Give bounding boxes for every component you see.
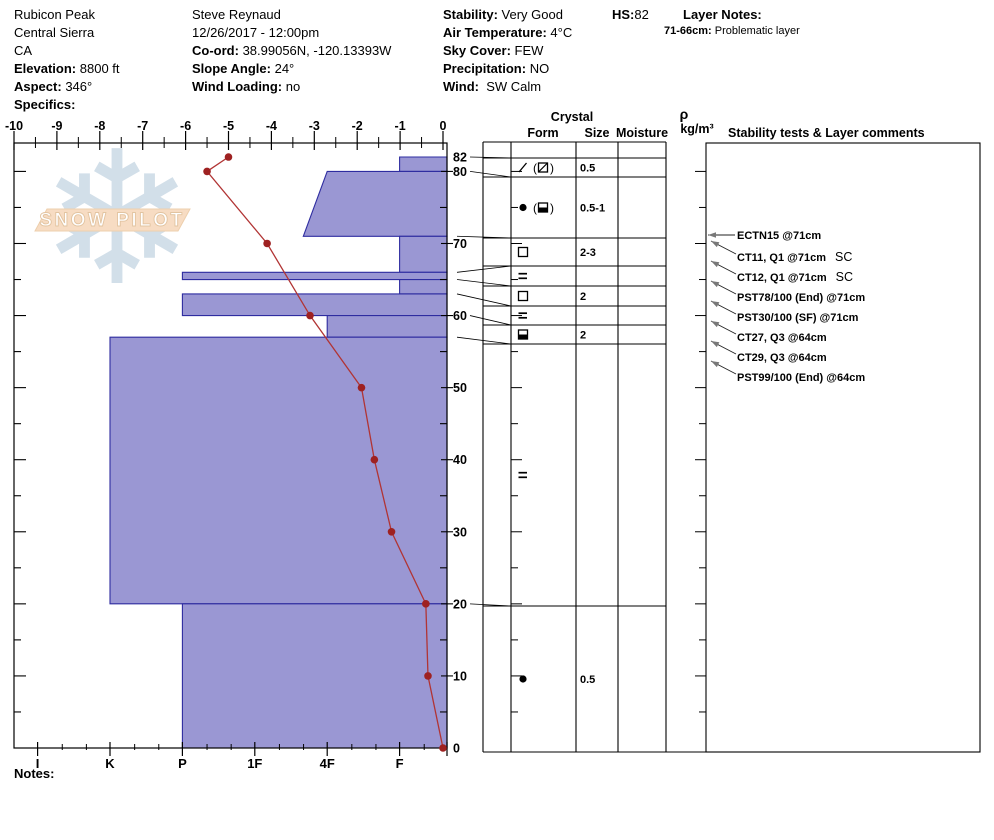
svg-text:60: 60 <box>453 309 467 323</box>
stability-test-label: PST99/100 (End) @64cm <box>737 372 865 384</box>
snow-layer <box>182 294 447 316</box>
depth-row-connector <box>457 337 511 344</box>
arrow-icon <box>711 241 719 247</box>
circle-symbol <box>519 204 526 211</box>
stability-test-label: ECTN15 @71cm <box>737 230 821 242</box>
crystal-forms: ()0.5()0.5-12-3220.5 <box>519 161 606 686</box>
depth-row-connector <box>470 316 511 325</box>
svg-text:20: 20 <box>453 597 467 611</box>
svg-text:4F: 4F <box>320 756 335 771</box>
snow-layer <box>400 280 447 294</box>
snow-layer <box>400 236 447 272</box>
grain-size: 2-3 <box>580 247 596 259</box>
svg-text:0: 0 <box>440 119 447 133</box>
depth-row-connector <box>457 266 511 272</box>
stability-test-label: PST30/100 (SF) @71cm <box>737 312 859 324</box>
snow-layer <box>303 171 447 236</box>
snow-layer <box>400 157 447 171</box>
grain-size: 0.5 <box>580 674 595 686</box>
grain-size: 0.5-1 <box>580 203 605 215</box>
snowpilot-watermark: ❄SNOW PILOT <box>35 117 195 323</box>
svg-text:): ) <box>550 161 554 175</box>
arrow-icon <box>711 341 719 347</box>
svg-text:40: 40 <box>453 453 467 467</box>
svg-text:-7: -7 <box>137 119 148 133</box>
form-header: Form <box>527 126 558 140</box>
snowpilot-report: Rubicon Peak Central Sierra CA Elevation… <box>0 0 994 840</box>
temperature-point <box>422 600 430 608</box>
svg-text:-9: -9 <box>51 119 62 133</box>
snow-profile-chart: ❄SNOW PILOT-10-9-8-7-6-5-4-3-2-108280706… <box>0 0 994 840</box>
svg-text:): ) <box>550 201 554 215</box>
depth-row-connector <box>457 280 511 286</box>
svg-text:82: 82 <box>453 151 467 165</box>
arrow-icon <box>711 261 719 267</box>
snow-layer <box>182 272 447 279</box>
svg-text:-10: -10 <box>5 119 23 133</box>
temperature-point <box>203 168 211 176</box>
svg-text:(: ( <box>533 201 537 215</box>
stability-test-label: CT29, Q3 @64cm <box>737 352 827 364</box>
temperature-point <box>358 384 366 392</box>
notes-label: Notes: <box>14 766 54 781</box>
moisture-header: Moisture <box>616 126 668 140</box>
depth-row-connector <box>457 294 511 306</box>
temperature-point <box>439 744 447 752</box>
arrow-icon <box>711 301 719 307</box>
stability-test-label: PST78/100 (End) @71cm <box>737 292 865 304</box>
svg-text:-3: -3 <box>309 119 320 133</box>
temperature-point <box>371 456 379 464</box>
arrow-icon <box>711 361 719 367</box>
circle-symbol <box>519 675 526 682</box>
temperature-point <box>263 240 271 248</box>
stability-test-label: CT11, Q1 @71cmSC <box>737 250 852 264</box>
svg-text:-1: -1 <box>395 119 406 133</box>
temperature-point <box>388 528 396 536</box>
size-header: Size <box>584 126 609 140</box>
snow-layer <box>110 337 447 604</box>
arrow-icon <box>711 281 719 287</box>
svg-text:-2: -2 <box>352 119 363 133</box>
svg-text:80: 80 <box>453 165 467 179</box>
snow-layer <box>182 604 447 748</box>
svg-text:10: 10 <box>453 669 467 683</box>
svg-text:30: 30 <box>453 525 467 539</box>
svg-text:-5: -5 <box>223 119 234 133</box>
depth-row-connector <box>470 171 511 177</box>
svg-text:-4: -4 <box>266 119 277 133</box>
stability-test-label: CT12, Q1 @71cmSC <box>737 270 853 284</box>
density-header: ρ <box>680 106 689 122</box>
grain-size: 2 <box>580 291 586 303</box>
svg-text:0: 0 <box>453 742 460 756</box>
svg-text:K: K <box>105 756 115 771</box>
svg-text:F: F <box>396 756 404 771</box>
snow-layer <box>327 316 447 338</box>
crystal-header: Crystal <box>551 110 593 124</box>
arrow-icon <box>708 232 716 238</box>
temperature-point <box>306 312 314 320</box>
watermark-text: SNOW PILOT <box>39 210 184 231</box>
arrow-icon <box>711 321 719 327</box>
table-headers: CrystalFormSizeMoistureρkg/m³Stability t… <box>527 106 924 140</box>
svg-text:P: P <box>178 756 187 771</box>
square-symbol <box>519 248 528 257</box>
stability-tests: ECTN15 @71cmCT11, Q1 @71cmSCCT12, Q1 @71… <box>708 230 865 384</box>
svg-text:70: 70 <box>453 237 467 251</box>
layer-table <box>457 142 980 752</box>
svg-text:-8: -8 <box>94 119 105 133</box>
grain-size: 2 <box>580 330 586 342</box>
grain-size: 0.5 <box>580 163 595 175</box>
temperature-point <box>225 153 233 161</box>
svg-text:50: 50 <box>453 381 467 395</box>
slash-symbol <box>519 163 527 172</box>
svg-text:-6: -6 <box>180 119 191 133</box>
depth-row-connector <box>470 157 511 158</box>
stability-test-label: CT27, Q3 @64cm <box>737 332 827 344</box>
svg-text:1F: 1F <box>247 756 262 771</box>
svg-text:(: ( <box>533 161 537 175</box>
square-symbol <box>519 292 528 301</box>
temperature-point <box>424 672 432 680</box>
density-units: kg/m³ <box>680 122 713 136</box>
stability-header: Stability tests & Layer comments <box>728 126 925 140</box>
